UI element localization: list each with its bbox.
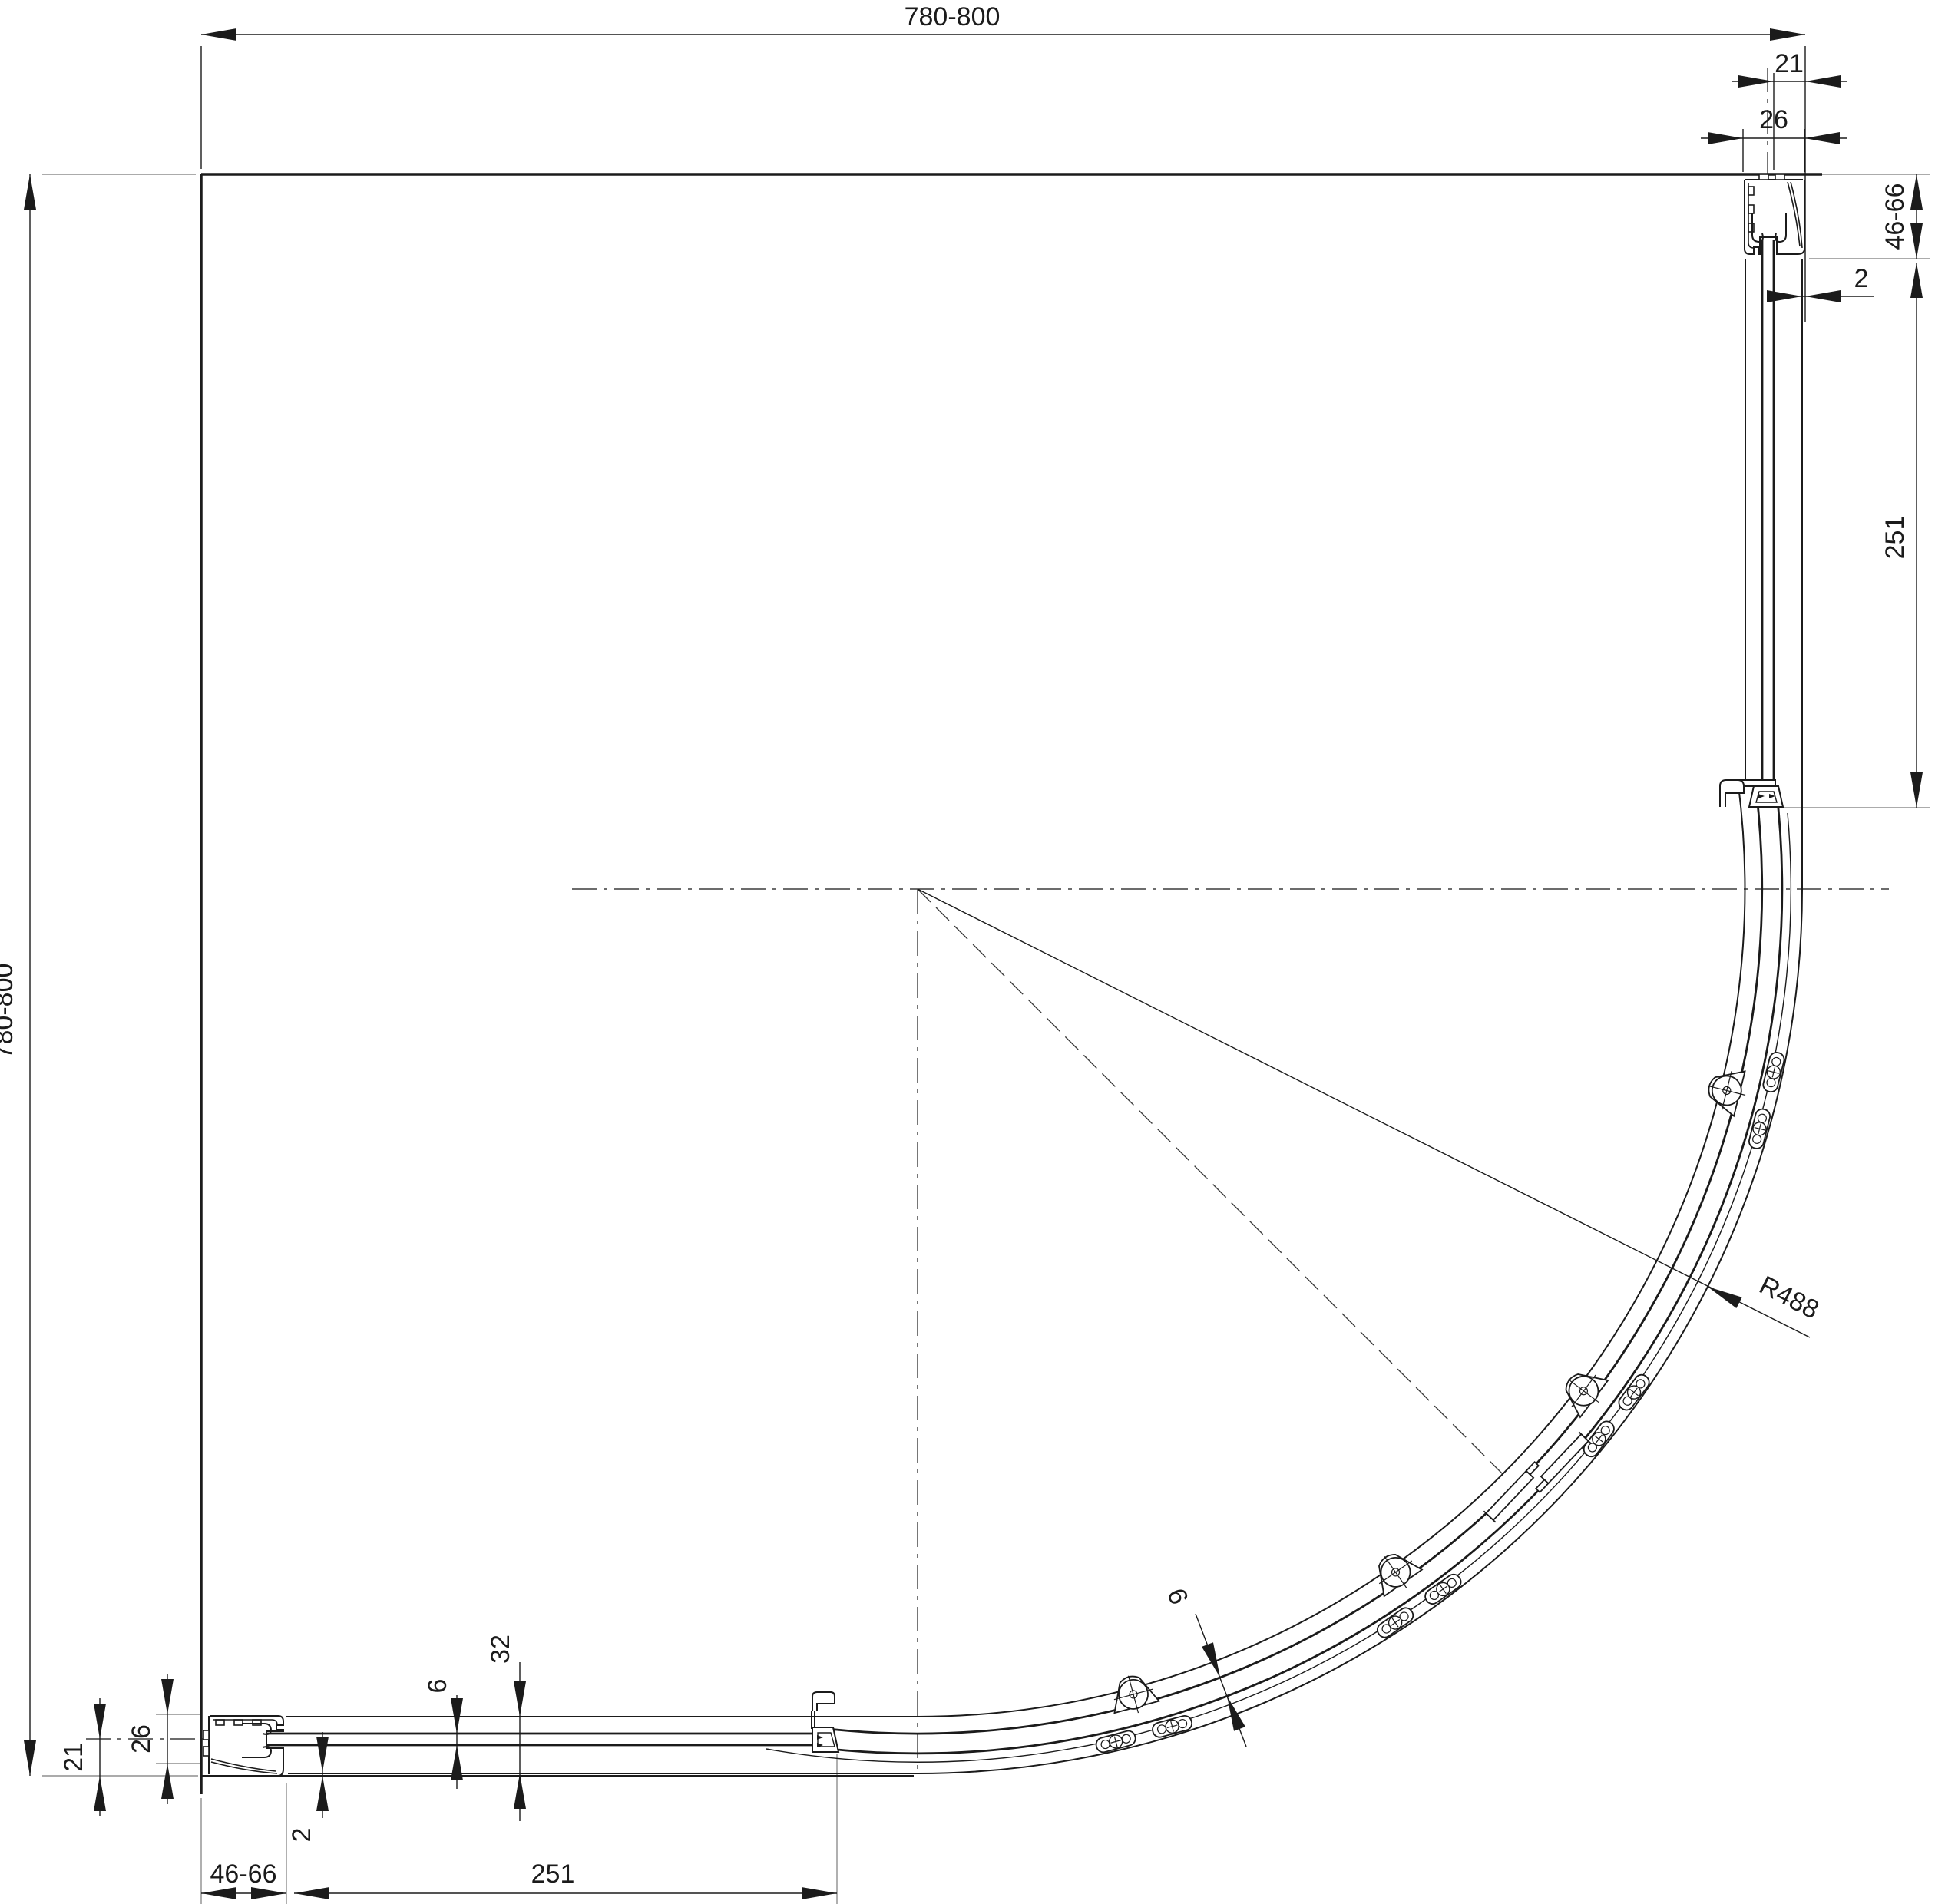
fixed-segment-label: 251: [531, 1859, 575, 1889]
dim-wall-offset-bottom: 21: [59, 1698, 106, 1816]
dim-wall-gap-right: 2: [1767, 264, 1874, 302]
track-inner-face-arc: [286, 785, 1745, 1717]
profile-width-label: 26: [127, 1724, 156, 1754]
dim-profile-width-bottom: 26: [127, 1674, 174, 1804]
radius-dimension: R488: [918, 889, 1824, 1337]
profile-width-label: 26: [1759, 105, 1788, 134]
wall-gap-label: 2: [287, 1828, 316, 1843]
curved-panel-thickness-label: 9: [1163, 1584, 1195, 1608]
dim-fixed-segment-bottom: 251: [294, 1859, 837, 1899]
center-lines: [86, 68, 1889, 1772]
fixed-segment-label: 251: [1880, 516, 1910, 560]
track-outer-face: [288, 259, 1802, 1773]
dim-overall-depth-left: 780-800: [0, 174, 36, 1776]
door-inner-arc: [822, 789, 1762, 1734]
extension-lines: [42, 46, 1930, 1904]
wall-gap-label: 2: [1854, 264, 1869, 293]
right-fixed-glass: [1762, 240, 1774, 795]
wall-profile-range-label: 46-66: [1880, 183, 1910, 250]
wall-offset-label: 21: [59, 1743, 88, 1772]
wall-profile-range-label: 46-66: [210, 1859, 277, 1889]
overall-depth-label: 780-800: [0, 964, 18, 1059]
walls: [201, 174, 1822, 1794]
end-profile-bottom: [812, 1692, 838, 1752]
track-rail-arc: [766, 813, 1791, 1762]
roller-assembly-3: [1345, 1529, 1464, 1641]
dim-wall-profile-range-right: 46-66: [1880, 174, 1923, 259]
dim-profile-width-right: 26: [1701, 105, 1847, 144]
radius-label: R488: [1755, 1271, 1824, 1325]
dim-track-width: 32: [486, 1635, 526, 1821]
shower-enclosure-plan-drawing: R488 780-800 780-800 21 26 46-66 2: [0, 0, 1935, 1904]
roller-assembly-4: [1081, 1663, 1193, 1754]
wall-offset-label: 21: [1775, 49, 1804, 78]
dim-wall-offset-right: 21: [1732, 49, 1847, 88]
end-profile-right: [1720, 780, 1783, 807]
dim-wall-profile-range-bottom: 46-66: [201, 1859, 286, 1899]
curved-track: [286, 259, 1802, 1773]
dim-fixed-segment-right: 251: [1880, 263, 1923, 808]
overall-width-label: 780-800: [905, 2, 1001, 31]
dim-overall-width-top: 780-800: [201, 2, 1805, 41]
glass-thickness-label: 6: [423, 1679, 452, 1694]
diagonal-45-line: [918, 889, 1507, 1478]
roller-assembly-1: [1696, 1038, 1785, 1149]
bottom-fixed-glass: [266, 1734, 812, 1745]
dim-wall-gap-bottom: 2: [287, 1732, 329, 1842]
track-width-label: 32: [486, 1635, 515, 1664]
fixed-glass-panels: [266, 240, 1774, 1745]
